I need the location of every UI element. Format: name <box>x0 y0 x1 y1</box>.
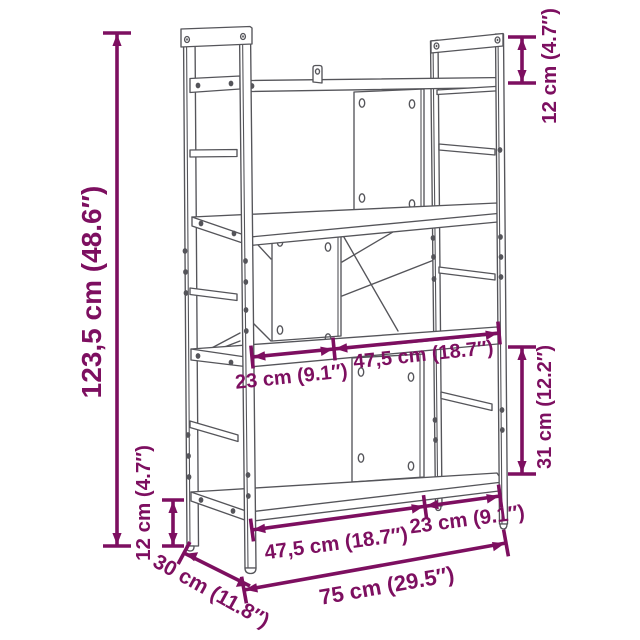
svg-text:123,5 cm (48.6″): 123,5 cm (48.6″) <box>76 186 107 399</box>
svg-text:31 cm (12.2″): 31 cm (12.2″) <box>534 345 556 469</box>
svg-text:12 cm (4.7″): 12 cm (4.7″) <box>538 8 561 124</box>
svg-text:12 cm (4.7″): 12 cm (4.7″) <box>132 445 155 561</box>
